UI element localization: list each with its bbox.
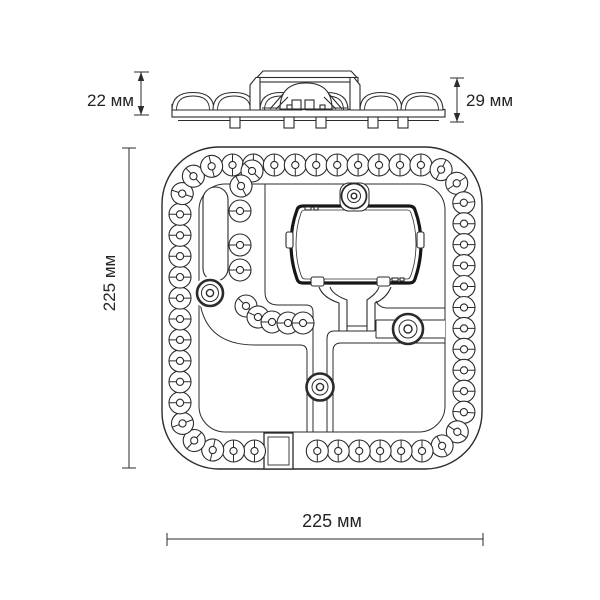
housing-post-right <box>350 78 360 111</box>
dimension-plan-height-label: 225 мм <box>100 255 119 311</box>
led-lens <box>229 234 251 256</box>
led-lens <box>169 245 191 267</box>
led-lens <box>369 440 391 462</box>
drawing-canvas: 22 мм 29 мм <box>0 0 600 600</box>
led-lens <box>347 154 369 176</box>
led-lens <box>390 440 412 462</box>
driver-tab-right <box>417 232 424 248</box>
led-lens <box>306 440 328 462</box>
led-lens <box>229 200 251 222</box>
dimension-plan-height <box>122 148 136 468</box>
led-lens <box>292 312 314 334</box>
led-lens <box>305 154 327 176</box>
led-lens <box>284 154 306 176</box>
led-lens <box>453 213 475 235</box>
plan-connector <box>264 433 293 469</box>
led-lens <box>453 380 475 402</box>
led-lens <box>453 297 475 319</box>
housing-top-face <box>257 71 357 78</box>
dimension-side-right <box>450 78 464 122</box>
led-lens <box>229 259 251 281</box>
led-lens <box>410 154 432 176</box>
led-lens <box>222 154 244 176</box>
driver-box-frame <box>291 206 421 283</box>
screw <box>342 184 367 209</box>
led-lens <box>411 440 433 462</box>
plan-view <box>162 147 482 469</box>
housing-post-left <box>250 78 260 111</box>
led-lens <box>326 154 348 176</box>
led-lens <box>348 440 370 462</box>
housing-beam <box>256 78 358 83</box>
led-lens <box>453 234 475 256</box>
led-lens <box>169 266 191 288</box>
led-lens <box>244 440 266 462</box>
led-lens <box>453 359 475 381</box>
side-view <box>172 71 445 128</box>
screw <box>197 280 223 306</box>
driver-tab-left <box>286 232 293 248</box>
technical-drawing: 22 мм 29 мм <box>0 0 600 600</box>
led-lens <box>327 440 349 462</box>
led-lens <box>453 338 475 360</box>
dimension-side-right-label: 29 мм <box>466 91 513 110</box>
led-lens <box>223 440 245 462</box>
side-pegs <box>230 117 408 128</box>
led-lens <box>169 308 191 330</box>
led-lens <box>169 203 191 225</box>
dimension-plan-width-label: 225 мм <box>302 511 362 531</box>
led-lens <box>169 224 191 246</box>
led-lens <box>169 371 191 393</box>
led-lens <box>453 276 475 298</box>
driver-box <box>286 201 424 286</box>
led-lens <box>453 317 475 339</box>
led-lens <box>169 287 191 309</box>
screw <box>307 374 334 401</box>
driver-tab-bottom-left <box>311 277 324 286</box>
plan-stadium-cutout <box>203 187 228 281</box>
led-lens <box>263 154 285 176</box>
led-lens <box>453 255 475 277</box>
dimension-side-left-label: 22 мм <box>87 91 134 110</box>
led-lens <box>368 154 390 176</box>
led-lens <box>169 329 191 351</box>
screw <box>393 314 423 344</box>
dimension-side-left <box>134 72 149 115</box>
led-lens <box>389 154 411 176</box>
driver-tab-bottom-right <box>377 277 390 286</box>
dimension-plan-width <box>167 533 483 546</box>
side-board <box>172 110 445 118</box>
led-lens <box>169 392 191 414</box>
led-lens <box>169 350 191 372</box>
